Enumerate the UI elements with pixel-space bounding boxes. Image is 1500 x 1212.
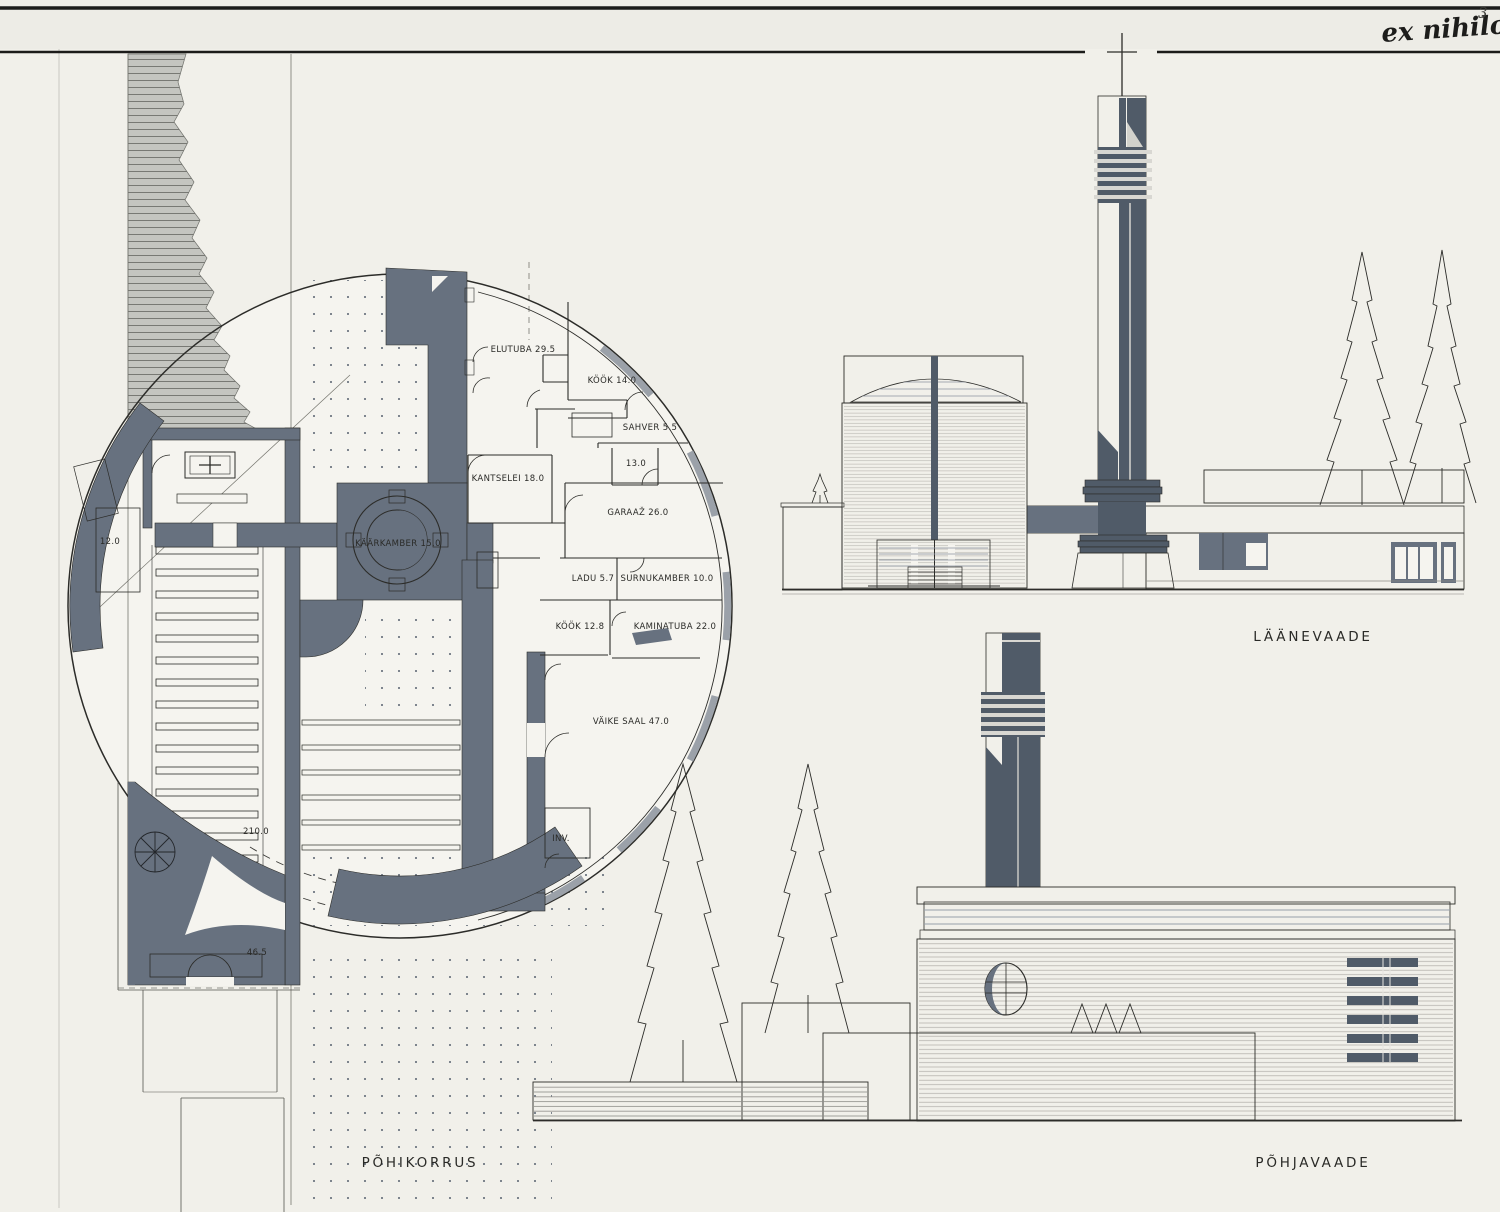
room-label: 46.5 xyxy=(247,948,267,958)
striped-plinth xyxy=(533,1082,868,1120)
room-label: ELUTUBA 29.5 xyxy=(491,345,556,355)
link-band-dark xyxy=(1027,506,1098,533)
facade-mullion xyxy=(931,356,938,540)
room-label: KÄÄRKAMBER 15.0 xyxy=(355,538,441,549)
architectural-drawing: ex nihilo 3 xyxy=(0,0,1500,1212)
room-label: 13.0 xyxy=(626,459,646,469)
tower-collar xyxy=(1083,480,1162,502)
room-label: SAHVER 5.5 xyxy=(623,423,678,433)
caption-north: PÕHJAVAADE xyxy=(1255,1154,1370,1171)
room-label: INV. xyxy=(552,834,570,844)
caption-west: LÄÄNEVAADE xyxy=(1253,627,1372,645)
room-label: SURNUKAMBER 10.0 xyxy=(620,574,713,584)
main-wall-siding xyxy=(919,941,1453,1119)
caption-plan: PÕHIKORRUS xyxy=(362,1154,479,1171)
room-label: GARAAŽ 26.0 xyxy=(607,506,668,518)
page-number: 3 xyxy=(1478,4,1488,22)
room-label: KANTSELEI 18.0 xyxy=(472,474,545,484)
room-label: VÄIKE SAAL 47.0 xyxy=(593,716,669,727)
spiral-stair-icon xyxy=(135,832,175,872)
room-label: 210.0 xyxy=(243,827,269,837)
sheet: ex nihilo 3 xyxy=(0,0,1500,1212)
room-label: KÖÖK 14.0 xyxy=(588,375,637,386)
room-label: KÖÖK 12.8 xyxy=(556,621,605,632)
room-label: KAMINATUBA 22.0 xyxy=(634,622,717,632)
room-label: LADU 5.7 xyxy=(572,574,615,584)
room-label: 12.0 xyxy=(100,537,120,547)
